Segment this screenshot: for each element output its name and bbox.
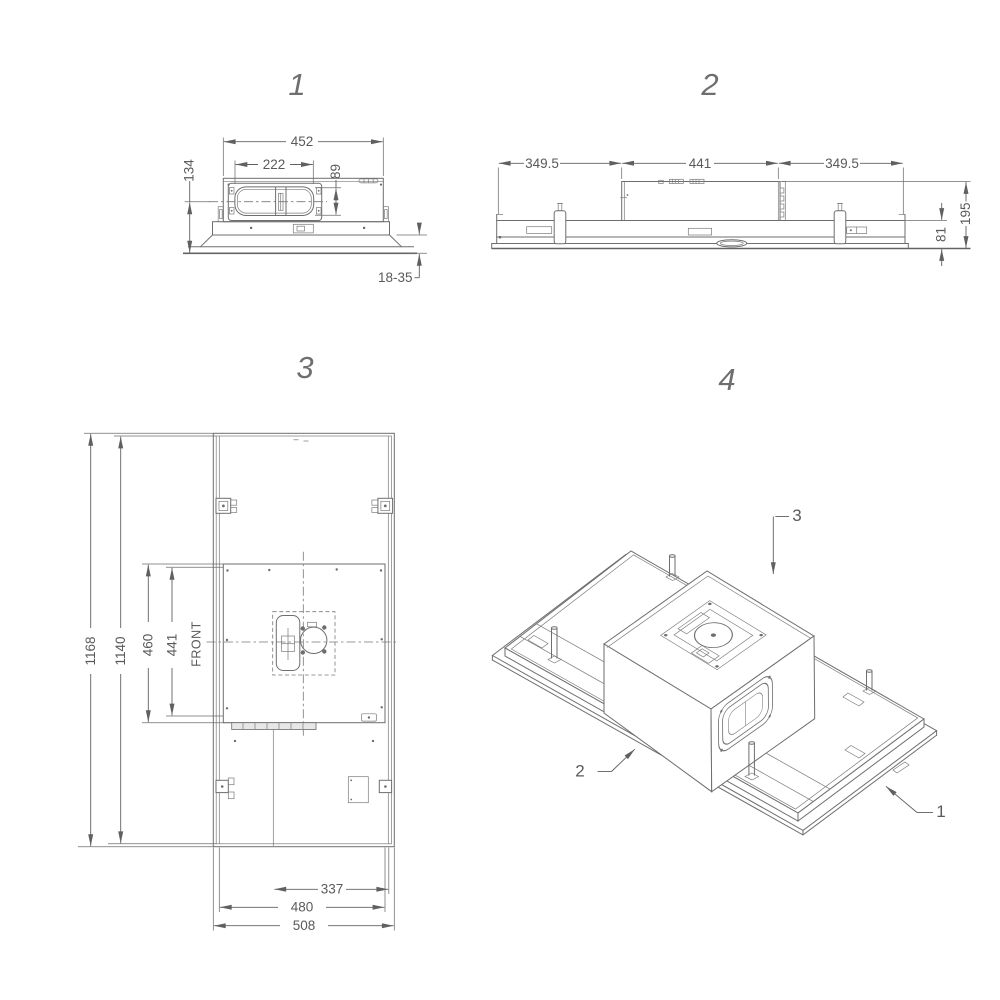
rail-bracket-top-left bbox=[216, 498, 237, 513]
svg-text:460: 460 bbox=[141, 634, 156, 657]
svg-text:18-35: 18-35 bbox=[378, 270, 413, 285]
dim-plate-length: 460 bbox=[141, 564, 231, 723]
view1-number: 1 bbox=[288, 67, 305, 102]
callout-1: 1 bbox=[886, 786, 946, 821]
duct-opening bbox=[235, 187, 314, 216]
technical-drawing-page: 1 bbox=[0, 0, 1000, 1000]
svg-text:441: 441 bbox=[689, 156, 712, 171]
spring-hanger-left bbox=[554, 204, 566, 244]
svg-text:1: 1 bbox=[936, 802, 945, 821]
svg-text:349.5: 349.5 bbox=[825, 156, 859, 171]
duct-adapter-plate bbox=[209, 183, 327, 220]
view1-front-elevation: 1 bbox=[182, 67, 427, 285]
side-slot-corner bbox=[893, 762, 909, 773]
svg-text:480: 480 bbox=[291, 900, 314, 915]
svg-text:89: 89 bbox=[328, 164, 343, 179]
view4-number: 4 bbox=[718, 362, 735, 397]
view3-plan-view: 3 bbox=[78, 350, 399, 933]
svg-text:337: 337 bbox=[321, 882, 344, 897]
view1-base bbox=[183, 222, 417, 254]
dim-base-height: 81 bbox=[905, 203, 949, 266]
view2-side-elevation: 2 349.5 441 349.5 bbox=[492, 67, 974, 266]
dim-duct-width: 222 bbox=[235, 157, 313, 184]
filter-rail bbox=[232, 723, 316, 730]
dim-ceiling-thickness: 18-35 bbox=[378, 226, 427, 286]
svg-text:2: 2 bbox=[575, 762, 584, 781]
drawing-sheet: 1 bbox=[0, 0, 1000, 1000]
view3-number: 3 bbox=[296, 350, 313, 385]
side-mount-tabs bbox=[218, 207, 388, 222]
svg-text:222: 222 bbox=[263, 157, 286, 172]
svg-text:349.5: 349.5 bbox=[525, 156, 559, 171]
svg-text:134: 134 bbox=[182, 159, 197, 182]
motor-housing bbox=[620, 179, 785, 220]
svg-text:452: 452 bbox=[291, 134, 314, 149]
svg-text:3: 3 bbox=[792, 506, 801, 525]
handle-recess bbox=[717, 240, 747, 247]
vent-grille bbox=[359, 179, 378, 183]
rail-bracket-bottom-right bbox=[348, 777, 391, 803]
ceiling-flange bbox=[183, 235, 417, 253]
latch-detail bbox=[847, 227, 867, 234]
rail-bracket-bottom-left bbox=[216, 778, 234, 799]
svg-text:441: 441 bbox=[164, 634, 179, 657]
dim-inner-width: 480 bbox=[219, 848, 385, 915]
view2-number: 2 bbox=[700, 67, 718, 102]
dim-overall-width: 452 bbox=[223, 134, 383, 176]
front-label: FRONT bbox=[189, 621, 203, 667]
dim-cutout-width: 337 bbox=[274, 848, 388, 897]
rail-bracket-top-right bbox=[372, 498, 393, 513]
dim-overall-width-plan: 508 bbox=[213, 848, 394, 934]
callout-2: 2 bbox=[575, 749, 635, 780]
svg-text:1140: 1140 bbox=[113, 636, 128, 665]
view4-isometric: 4 bbox=[492, 362, 945, 835]
callout-3: 3 bbox=[773, 506, 801, 574]
motor-plate bbox=[207, 552, 400, 737]
svg-text:195: 195 bbox=[958, 203, 973, 226]
svg-text:508: 508 bbox=[293, 918, 316, 933]
svg-text:81: 81 bbox=[934, 227, 949, 242]
svg-text:1168: 1168 bbox=[83, 636, 98, 665]
spring-hanger-right bbox=[834, 204, 846, 244]
dim-body-height: 134 bbox=[182, 159, 210, 253]
